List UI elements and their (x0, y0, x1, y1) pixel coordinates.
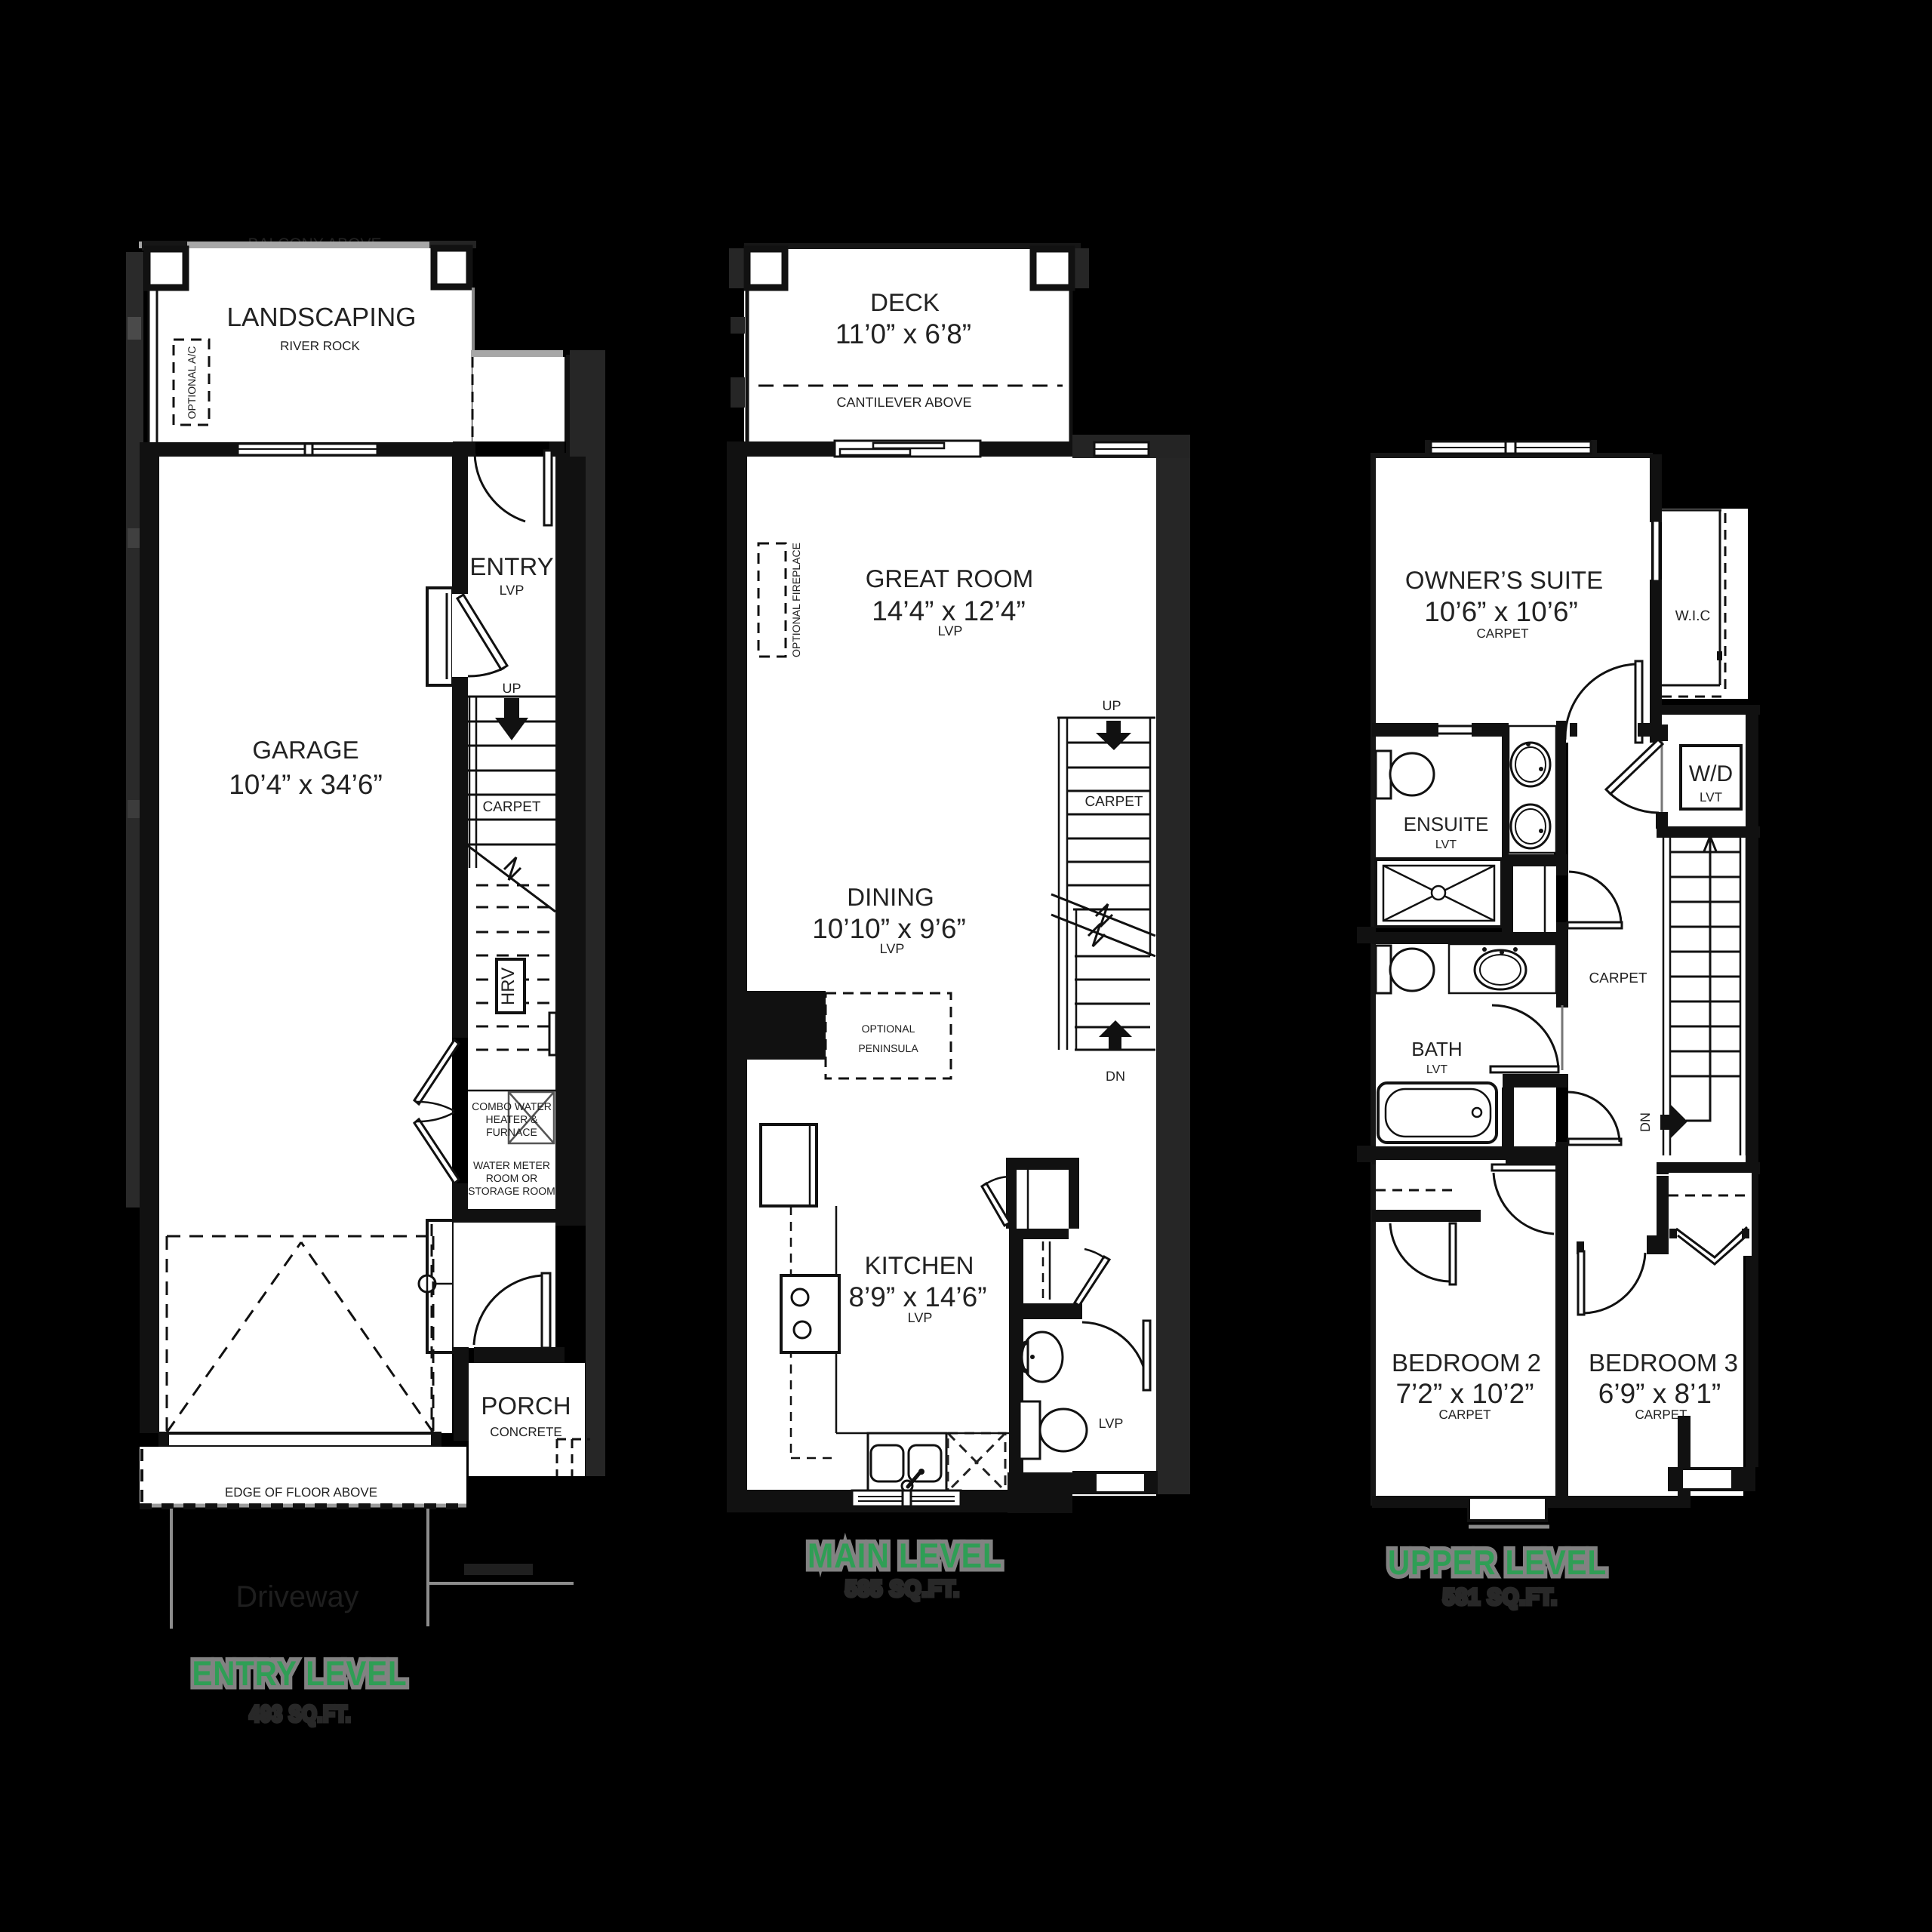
svg-text:CARPET: CARPET (1439, 1407, 1491, 1422)
svg-text:7’2” x 10’2”: 7’2” x 10’2” (1395, 1378, 1534, 1409)
svg-text:CONCRETE: CONCRETE (490, 1425, 561, 1439)
svg-text:LANDSCAPING: LANDSCAPING (227, 303, 417, 332)
svg-text:Driveway: Driveway (236, 1580, 359, 1614)
svg-text:8’9” x 14’6”: 8’9” x 14’6” (848, 1281, 986, 1312)
svg-text:CARPET: CARPET (1589, 971, 1647, 986)
svg-text:ROOM OR: ROOM OR (486, 1172, 537, 1184)
svg-text:CARPET: CARPET (1084, 794, 1143, 810)
svg-text:DN: DN (1106, 1069, 1125, 1084)
svg-text:LVT: LVT (1426, 1063, 1447, 1076)
svg-text:581 SQ.FT.: 581 SQ.FT. (1443, 1585, 1558, 1610)
svg-text:OPTIONAL FIREPLACE: OPTIONAL FIREPLACE (790, 543, 802, 657)
svg-text:PORCH: PORCH (481, 1392, 571, 1420)
svg-text:HEATER &: HEATER & (486, 1113, 539, 1125)
svg-text:6’9” x 8’1”: 6’9” x 8’1” (1598, 1378, 1721, 1409)
svg-text:ENSUITE: ENSUITE (1404, 813, 1489, 835)
svg-text:11’0” x 6’8”: 11’0” x 6’8” (835, 318, 971, 349)
svg-text:KITCHEN: KITCHEN (865, 1251, 974, 1279)
svg-text:DN: DN (1638, 1112, 1653, 1132)
svg-text:CARPET: CARPET (1477, 626, 1529, 641)
svg-text:DECK: DECK (870, 288, 940, 316)
svg-text:DINING: DINING (847, 883, 934, 911)
svg-text:10’4” x 34’6”: 10’4” x 34’6” (229, 769, 383, 800)
svg-text:HRV: HRV (498, 968, 518, 1005)
svg-text:UPPER LEVEL: UPPER LEVEL (1388, 1543, 1607, 1582)
svg-text:LVT: LVT (1435, 838, 1457, 851)
svg-text:COMBO WATER: COMBO WATER (472, 1100, 552, 1112)
svg-text:W.I.C: W.I.C (1675, 608, 1710, 624)
svg-text:LVP: LVP (908, 1310, 933, 1325)
svg-text:FURNACE: FURNACE (486, 1126, 537, 1138)
svg-text:UP: UP (502, 681, 521, 696)
svg-text:OPTIONAL: OPTIONAL (862, 1023, 915, 1035)
svg-text:10’6” x 10’6”: 10’6” x 10’6” (1424, 596, 1578, 627)
svg-text:585 SQ.FT.: 585 SQ.FT. (845, 1577, 960, 1601)
svg-text:GARAGE: GARAGE (252, 736, 358, 764)
svg-text:ENTRY LEVEL: ENTRY LEVEL (192, 1654, 408, 1693)
svg-text:LVP: LVP (938, 623, 963, 638)
svg-text:ENTRY: ENTRY (469, 552, 553, 580)
svg-text:GREAT ROOM: GREAT ROOM (866, 565, 1033, 592)
svg-text:10’10” x 9’6”: 10’10” x 9’6” (812, 913, 966, 944)
svg-text:UP: UP (1102, 698, 1121, 713)
svg-text:MAIN LEVEL: MAIN LEVEL (808, 1536, 1002, 1575)
svg-text:14’4” x 12’4”: 14’4” x 12’4” (872, 595, 1026, 626)
svg-text:RIVER ROCK: RIVER ROCK (280, 339, 360, 353)
svg-text:W/D: W/D (1689, 761, 1733, 786)
svg-text:CANTILEVER ABOVE: CANTILEVER ABOVE (836, 395, 971, 410)
svg-text:CARPET: CARPET (482, 799, 540, 815)
svg-text:PENINSULA: PENINSULA (858, 1042, 918, 1054)
svg-text:EDGE OF FLOOR ABOVE: EDGE OF FLOOR ABOVE (225, 1485, 377, 1500)
svg-text:BEDROOM 3: BEDROOM 3 (1589, 1349, 1738, 1377)
svg-text:LVP: LVP (880, 941, 905, 956)
svg-text:LVP: LVP (1099, 1416, 1124, 1431)
svg-text:LVP: LVP (500, 583, 525, 598)
svg-text:OWNER’S SUITE: OWNER’S SUITE (1405, 566, 1603, 594)
svg-text:WATER METER: WATER METER (473, 1159, 550, 1171)
svg-text:493 SQ.FT.: 493 SQ.FT. (250, 1702, 352, 1727)
svg-text:STORAGE ROOM: STORAGE ROOM (468, 1185, 555, 1197)
svg-text:LVT: LVT (1700, 790, 1722, 804)
svg-text:OPTIONAL A/C: OPTIONAL A/C (186, 346, 198, 420)
svg-text:BATH: BATH (1411, 1038, 1462, 1060)
svg-text:BEDROOM 2: BEDROOM 2 (1392, 1349, 1541, 1377)
